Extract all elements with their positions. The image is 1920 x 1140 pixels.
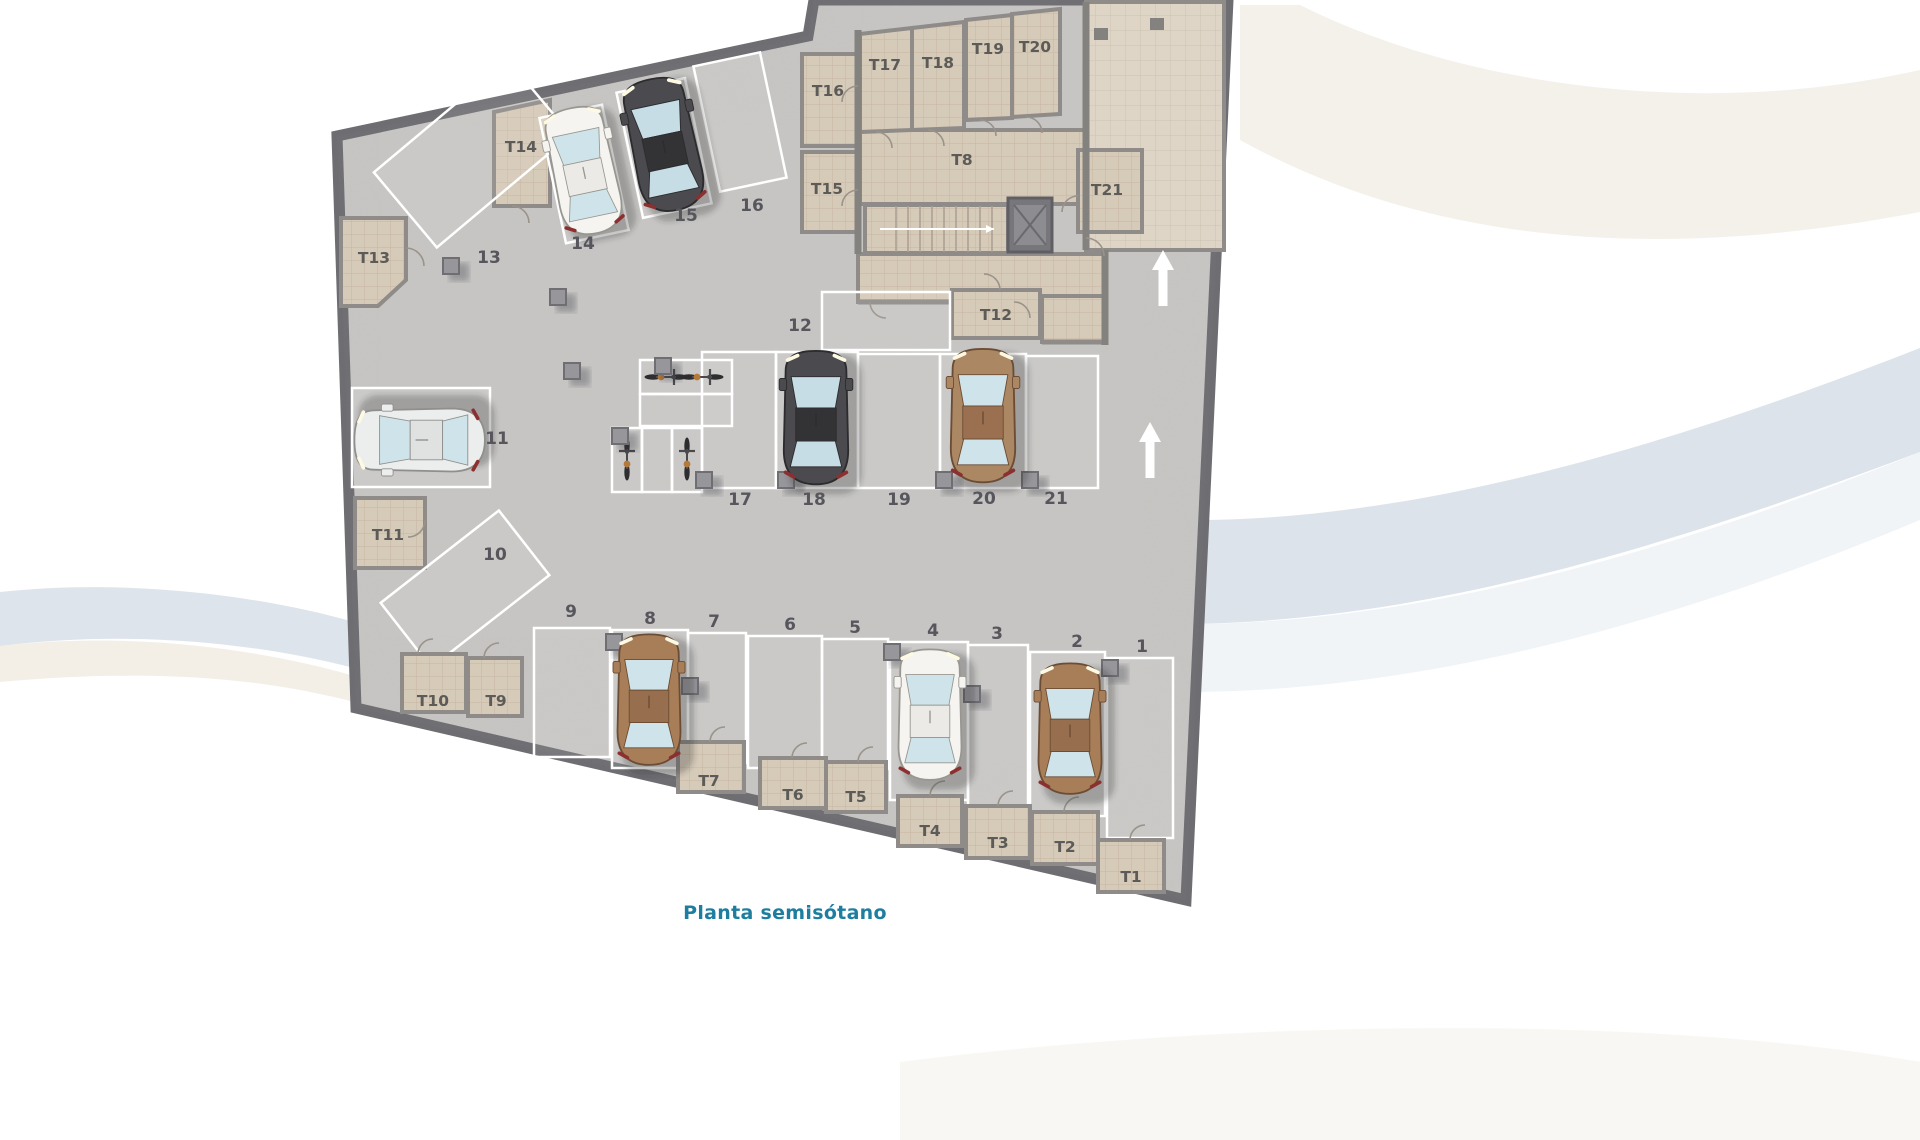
storage-t9-label: T9 — [485, 692, 506, 710]
elevator-icon — [1008, 198, 1052, 252]
parking-spot-7-label: 7 — [708, 612, 720, 632]
parking-spot-13-label: 13 — [477, 248, 501, 268]
parking-spot-21 — [1026, 356, 1098, 488]
storage-t5-label: T5 — [845, 788, 866, 806]
car-spot-4 — [894, 649, 975, 789]
parking-spot-9-label: 9 — [565, 602, 577, 622]
parking-spot-4-label: 4 — [927, 621, 939, 641]
stairs-icon — [865, 205, 1008, 253]
storage-t21-label: T21 — [1091, 181, 1123, 199]
parking-spot-12 — [822, 292, 950, 350]
car-spot-11 — [354, 395, 494, 476]
storage-room-t8 — [860, 130, 1086, 204]
storage-t8-label: T8 — [951, 151, 972, 169]
parking-spot-2-label: 2 — [1071, 632, 1083, 652]
parking-spot-5 — [822, 639, 888, 769]
storage-t18-label: T18 — [922, 54, 954, 72]
parking-spot-21-label: 21 — [1044, 489, 1068, 509]
storage-room-t20 — [1012, 9, 1060, 117]
bike-stall — [642, 428, 672, 492]
storage-t16-label: T16 — [812, 82, 844, 100]
storage-t14-label: T14 — [505, 138, 537, 156]
storage-t4-label: T4 — [919, 822, 941, 840]
car-spot-20 — [946, 349, 1029, 493]
storage-t1-label: T1 — [1120, 868, 1141, 886]
car-spot-8 — [613, 634, 694, 774]
parking-spot-3 — [968, 645, 1028, 810]
parking-spot-14-label: 14 — [571, 234, 595, 254]
parking-spot-12-label: 12 — [788, 316, 812, 336]
parking-spot-17-label: 17 — [728, 490, 752, 510]
car-spot-18 — [779, 351, 862, 495]
storage-t3-label: T3 — [987, 834, 1008, 852]
parking-spot-19 — [858, 354, 940, 488]
wall-nub — [1150, 18, 1164, 30]
page: 13 14 15 16 11 10 12 17 18 19 20 21 9 8 … — [0, 0, 1920, 1140]
storage-t17-label: T17 — [869, 56, 901, 74]
plan-title: Planta semisótano — [0, 902, 1570, 924]
storage-t10-label: T10 — [417, 692, 449, 710]
parking-spot-3-label: 3 — [991, 624, 1003, 644]
parking-spot-6 — [748, 636, 822, 768]
storage-t11-label: T11 — [372, 526, 404, 544]
storage-room-t16 — [802, 54, 858, 146]
floor-plan: 13 14 15 16 11 10 12 17 18 19 20 21 9 8 … — [0, 0, 1920, 1140]
storage-room-t17 — [860, 28, 912, 132]
parking-spot-10-label: 10 — [483, 545, 507, 565]
storage-t15-label: T15 — [811, 180, 843, 198]
parking-spot-5-label: 5 — [849, 618, 861, 638]
parking-spot-9 — [534, 628, 610, 757]
bike-stall — [640, 394, 732, 426]
storage-t13-label: T13 — [358, 249, 390, 267]
car-spot-2 — [1034, 663, 1115, 803]
parking-spot-1-label: 1 — [1136, 637, 1148, 657]
parking-spot-8-label: 8 — [644, 609, 656, 629]
wall-nub — [1094, 28, 1108, 40]
storage-t19-label: T19 — [972, 40, 1004, 58]
parking-spot-11-label: 11 — [485, 429, 509, 449]
parking-spot-15-label: 15 — [674, 206, 698, 226]
parking-spot-19-label: 19 — [887, 490, 911, 510]
parking-spot-18-label: 18 — [802, 490, 826, 510]
storage-room-t19 — [966, 15, 1012, 120]
corridor-vestibule — [1042, 296, 1105, 342]
storage-t20-label: T20 — [1019, 38, 1051, 56]
parking-spot-6-label: 6 — [784, 615, 796, 635]
parking-spot-1 — [1107, 658, 1173, 838]
storage-room-t18 — [912, 22, 964, 130]
storage-t6-label: T6 — [782, 786, 803, 804]
parking-spot-16-label: 16 — [740, 196, 764, 216]
parking-spot-20-label: 20 — [972, 489, 996, 509]
storage-t7-label: T7 — [698, 772, 719, 790]
storage-t2-label: T2 — [1054, 838, 1075, 856]
storage-t12-label: T12 — [980, 306, 1012, 324]
